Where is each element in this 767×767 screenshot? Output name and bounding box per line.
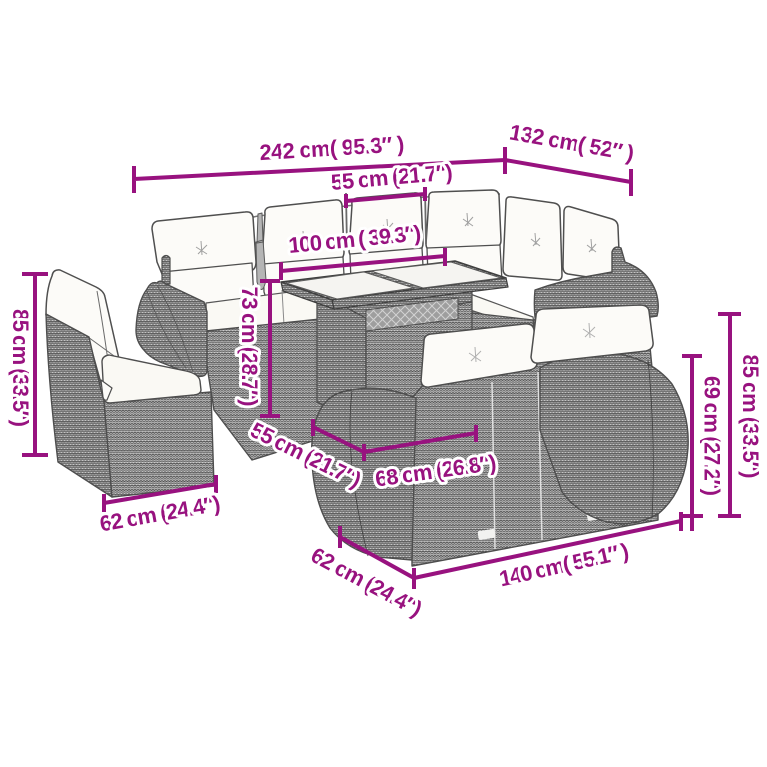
svg-text:85 cm (33.5″): 85 cm (33.5″) <box>738 355 763 479</box>
svg-text:73 cm (28.7″): 73 cm (28.7″) <box>237 287 262 407</box>
svg-text:85 cm (33.5″): 85 cm (33.5″) <box>8 309 33 427</box>
svg-text:69 cm (27.2″): 69 cm (27.2″) <box>699 376 724 496</box>
